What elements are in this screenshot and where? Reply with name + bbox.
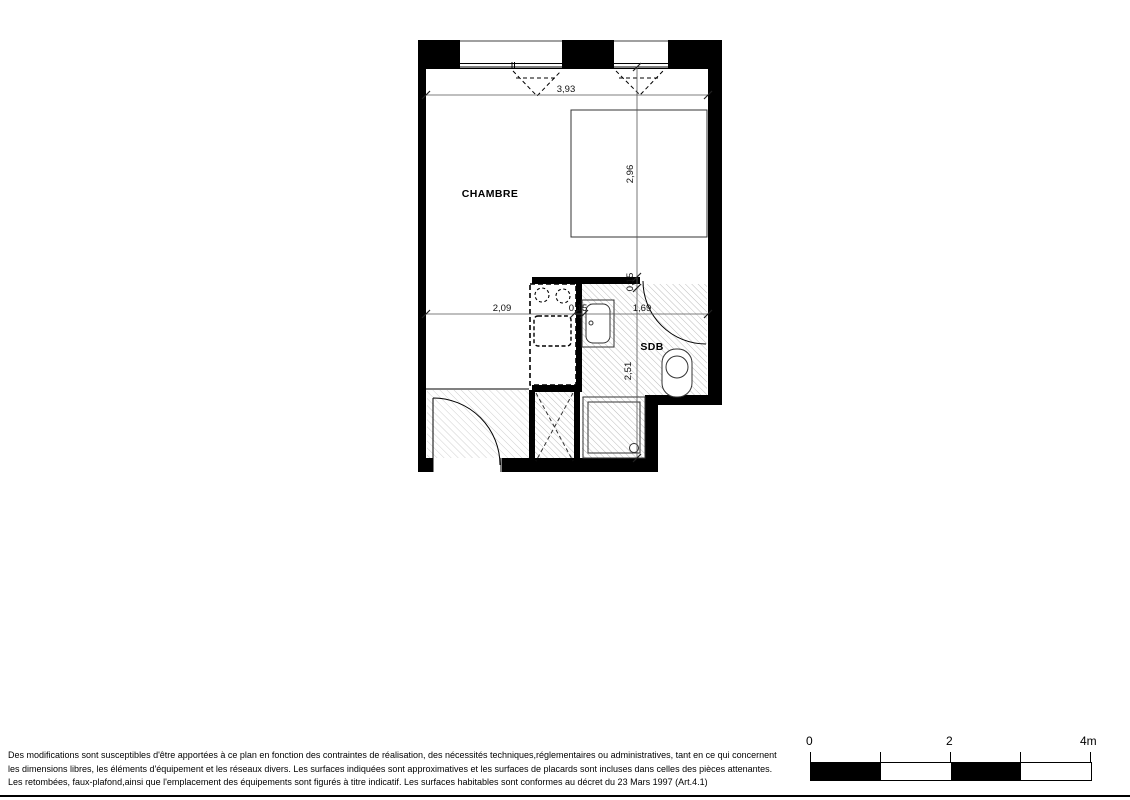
dim-partition-v: 0,15 <box>625 273 636 292</box>
scale-segment <box>1021 763 1091 780</box>
scale-label-2: 2 <box>946 734 953 748</box>
scale-tick <box>880 752 881 762</box>
dim-chambre-depth: 2,96 <box>625 165 636 184</box>
scale-label-4m: 4m <box>1080 734 1097 748</box>
disclaimer-text: Des modifications sont susceptibles d'êt… <box>8 749 768 790</box>
dim-sdb-depth: 2,51 <box>623 362 634 381</box>
hall-hatch <box>427 390 529 458</box>
disclaimer-line-2: les dimensions libres, les éléments d'éq… <box>8 763 768 777</box>
scale-segment <box>881 763 951 780</box>
disclaimer-line-1: Des modifications sont susceptibles d'êt… <box>8 749 768 763</box>
dim-kitchen-width: 2,09 <box>493 303 512 314</box>
scale-bar: 0 2 4m <box>806 734 1106 784</box>
scale-segment <box>951 763 1021 780</box>
dim-partition-h: 0,15 <box>569 303 588 314</box>
room-label-sdb: SDB <box>640 341 663 353</box>
room-label-chambre: CHAMBRE <box>462 188 518 200</box>
burner-icon <box>535 288 549 302</box>
page-bottom-rule <box>0 795 1130 797</box>
burner-icon <box>556 289 570 303</box>
scale-tick <box>1020 752 1021 762</box>
dim-width-total: 3,93 <box>557 84 576 95</box>
floor-plan-page: 3,93 2,09 0,15 1,69 2,96 0,15 2,51 CHAMB… <box>0 0 1130 800</box>
disclaimer-line-3: Les retombées, faux-plafond,ainsi que l'… <box>8 776 768 790</box>
bed <box>571 110 707 237</box>
dim-sdb-width: 1,69 <box>633 303 652 314</box>
scale-bar-segments <box>810 762 1092 781</box>
scale-tick <box>1090 752 1091 762</box>
sink-icon <box>534 316 571 346</box>
toilet <box>662 349 692 397</box>
scale-tick <box>950 752 951 762</box>
kitchenette <box>530 284 576 385</box>
scale-segment <box>811 763 881 780</box>
scale-label-0: 0 <box>806 734 813 748</box>
scale-tick <box>810 752 811 762</box>
floor-plan: 3,93 2,09 0,15 1,69 2,96 0,15 2,51 CHAMB… <box>410 30 740 485</box>
